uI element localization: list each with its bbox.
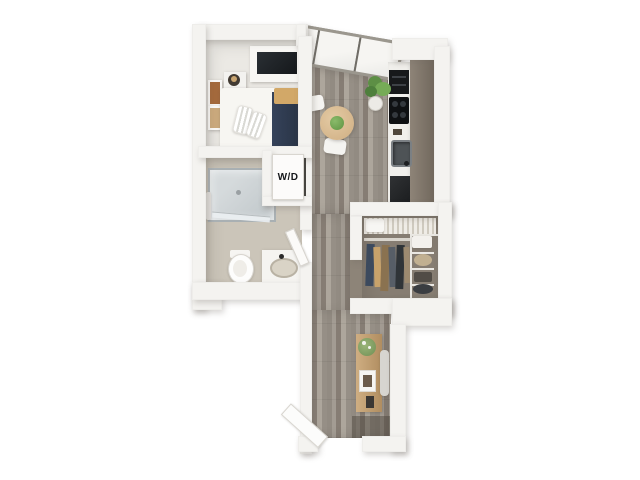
lamp-shade xyxy=(231,76,237,82)
burner xyxy=(392,112,398,118)
oven-stack xyxy=(389,70,409,94)
picture-frame xyxy=(359,370,376,392)
wall-right-upper xyxy=(434,46,450,216)
wall-bathroom-bottom xyxy=(192,282,304,300)
burner xyxy=(400,112,406,118)
picture-image xyxy=(363,375,372,387)
washer-dryer-unit: W/D xyxy=(272,154,304,200)
dining-chair xyxy=(323,138,347,156)
kitchen-cabinet-band xyxy=(410,58,436,204)
console-plant xyxy=(358,338,376,356)
window-plant-pot xyxy=(368,96,383,111)
wall-top-bedroom xyxy=(196,24,308,40)
console-plant-flower xyxy=(362,341,366,345)
closet-threshold xyxy=(350,258,362,298)
cooktop xyxy=(389,97,409,124)
wall-step-bottom-right xyxy=(392,298,452,326)
washer-dryer-label: W/D xyxy=(278,172,299,183)
wall-closet-left xyxy=(350,216,362,260)
folded-clothes xyxy=(413,284,433,294)
oven-detail xyxy=(392,76,406,78)
closet-rod xyxy=(364,238,412,241)
folded-clothes xyxy=(414,272,432,282)
refrigerator xyxy=(390,176,410,204)
storage-box xyxy=(366,219,384,232)
faucet xyxy=(404,161,409,166)
window-pane xyxy=(314,31,361,72)
folded-clothes xyxy=(414,254,432,266)
towel-rail xyxy=(206,192,211,220)
floor-plan-canvas: W/D xyxy=(0,0,640,480)
wall-left xyxy=(192,24,206,310)
wall-entry-right xyxy=(390,324,406,452)
vanity-faucet xyxy=(279,254,284,259)
tv-screen xyxy=(257,52,297,74)
console-object xyxy=(366,396,374,408)
shower-drain xyxy=(236,190,241,195)
wire-shelf xyxy=(412,268,434,270)
wall-bedroom-partition xyxy=(298,36,312,152)
console-plant-flower xyxy=(368,346,371,349)
oven-detail xyxy=(392,84,406,86)
burner xyxy=(400,101,406,107)
toilet-seat xyxy=(233,260,247,277)
closet-bin xyxy=(412,236,432,248)
wall-entry-bottom-right xyxy=(362,436,406,452)
cutting-board xyxy=(393,129,402,135)
table-plant xyxy=(330,116,344,130)
wall-closet-top xyxy=(350,202,452,216)
dark-floor-shadow xyxy=(352,416,390,438)
entry-chair xyxy=(380,350,389,396)
burner xyxy=(392,101,398,107)
hallway-wood-floor xyxy=(312,214,350,314)
window-plant-foliage xyxy=(375,82,391,96)
vanity-sink xyxy=(270,258,298,278)
